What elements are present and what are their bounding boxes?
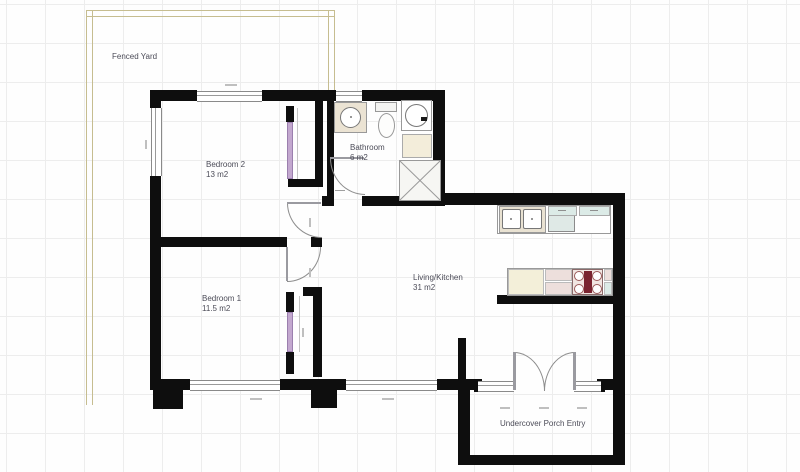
wall-left-main: [150, 176, 161, 390]
stove-burner-2: [592, 271, 602, 281]
room-name-bedroom2: Bedroom 2: [206, 160, 245, 170]
window-bedroom2-left: [151, 108, 162, 176]
wall-left-upper: [150, 90, 161, 108]
door-leaf-bedroom2: [287, 202, 321, 204]
floor-plan-canvas: Fenced Yard: [0, 0, 800, 472]
wall-right-main: [613, 193, 625, 465]
jamb-closet1-bottom: [286, 352, 294, 374]
toilet-bowl: [378, 113, 395, 138]
window-bedroom1-bottom: [190, 380, 280, 391]
wall-closet2-right: [315, 100, 323, 186]
wall-kitchen-top: [445, 193, 625, 205]
door-leaf-bedroom1: [286, 247, 288, 281]
entry-door-arc-right: [544, 352, 575, 391]
counter-right-cell-bottom: [604, 282, 612, 295]
counter-pink-cell-top: [545, 269, 572, 281]
door-arc-bedroom2: [287, 203, 322, 238]
wall-porch-bottom: [458, 455, 625, 465]
wall-kitchen-low: [497, 295, 614, 304]
wardrobe-door-bedroom2: [287, 122, 293, 179]
window-living-bottom: [346, 380, 437, 391]
pier-bedroom-divider: [311, 237, 322, 247]
room-area-bathroom: 6 m2: [350, 153, 385, 163]
closet1-line: [299, 296, 300, 352]
window-bathroom-top: [336, 91, 362, 102]
fence-top: [86, 10, 334, 17]
kitchen-cabinet-blue-2: [579, 206, 610, 216]
fence-left: [86, 10, 93, 405]
stub-closet1-top: [303, 287, 322, 296]
shower: [399, 160, 441, 201]
stove-burner-3: [574, 284, 584, 294]
wall-bathroom-left: [327, 100, 334, 196]
counter-pink-cell-bottom: [545, 282, 572, 295]
sink-drain-left: [510, 218, 512, 220]
dim-mark-9: [309, 268, 311, 277]
dim-mark-8: [309, 218, 311, 227]
room-area-bedroom2: 13 m2: [206, 170, 245, 180]
pier-bottom-mid: [311, 388, 337, 408]
shower-x-icon: [400, 161, 440, 200]
room-area-living-kitchen: 31 m2: [413, 283, 463, 293]
jamb-closet2-top: [286, 106, 294, 122]
dim-mark-7: [335, 190, 345, 191]
dim-mark-11: [302, 328, 304, 337]
dim-mark-5: [577, 407, 587, 409]
pier-bottom-left: [153, 388, 183, 409]
dim-mark-4: [539, 407, 549, 409]
window-porch-sidelight-right: [574, 381, 601, 392]
dishwasher: [548, 215, 575, 232]
wall-closet1-right: [313, 287, 322, 377]
dim-mark-3: [500, 407, 510, 409]
wall-closet2-return: [288, 179, 323, 187]
jamb-closet1-top: [286, 292, 294, 312]
closet2-line: [297, 108, 298, 179]
room-name-living-kitchen: Living/Kitchen: [413, 273, 463, 283]
room-name-bathroom: Bathroom: [350, 143, 385, 153]
stove-burner-4: [592, 284, 602, 294]
wardrobe-door-bedroom1: [287, 312, 293, 352]
room-name-bedroom1: Bedroom 1: [202, 294, 241, 304]
dim-mark-1: [250, 398, 262, 400]
room-label-bedroom1: Bedroom 1 11.5 m2: [202, 294, 241, 314]
counter-mark-1: [558, 210, 566, 211]
stove-burner-1: [574, 271, 584, 281]
entry-door-leaf-right: [573, 352, 576, 390]
sink-tap-dot: [350, 116, 352, 118]
wall-living-stub: [458, 338, 466, 390]
kitchen-cabinet-blue-1: [548, 206, 577, 216]
counter-cream-cell: [508, 269, 544, 295]
wall-bedroom-divider: [150, 237, 287, 247]
window-porch-sidelight-left: [478, 381, 514, 392]
wall-porch-left: [458, 390, 470, 465]
dim-mark-2: [382, 398, 394, 400]
toilet-cistern: [375, 102, 397, 112]
stove-center-strip: [584, 271, 592, 293]
wall-bathroom-bottom-1: [322, 196, 334, 206]
window-bedroom2-top: [197, 91, 262, 102]
room-label-living-kitchen: Living/Kitchen 31 m2: [413, 273, 463, 293]
room-label-fenced-yard: Fenced Yard: [112, 52, 157, 62]
room-area-bedroom1: 11.5 m2: [202, 304, 241, 314]
fence-right: [328, 10, 335, 92]
sink-drain-right: [531, 218, 533, 220]
door-arc-bedroom1: [287, 247, 321, 282]
entry-door-leaf-left: [513, 352, 516, 390]
dim-mark-12: [421, 117, 427, 121]
bathroom-cabinet: [402, 134, 432, 158]
wall-top-2: [262, 90, 336, 101]
counter-right-cell-top: [604, 269, 612, 281]
dim-mark-10: [145, 140, 147, 149]
room-label-bedroom2: Bedroom 2 13 m2: [206, 160, 245, 180]
dim-mark-6: [225, 84, 237, 86]
washing-machine-drum: [405, 104, 428, 127]
room-label-porch: Undercover Porch Entry: [500, 419, 585, 429]
counter-mark-2: [590, 210, 598, 211]
room-label-bathroom: Bathroom 6 m2: [350, 143, 385, 163]
entry-door-arc-left: [514, 352, 545, 391]
